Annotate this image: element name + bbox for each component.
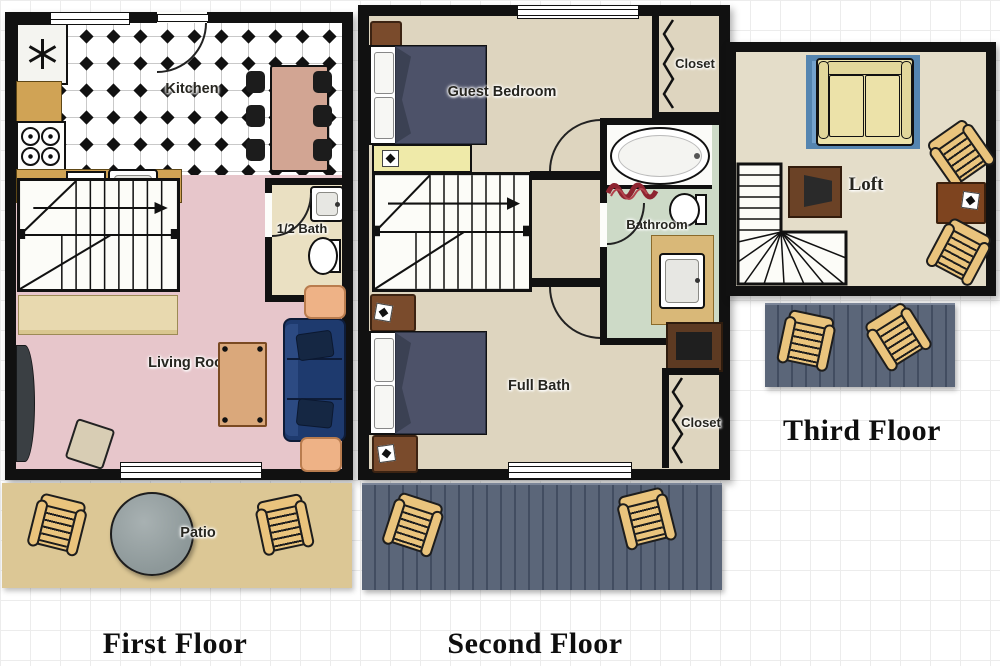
dresser — [372, 144, 472, 173]
first-floor-title: First Floor — [35, 627, 315, 661]
bed-blanket — [395, 332, 486, 434]
deck-sliding-door — [508, 462, 632, 479]
dining-chair — [246, 105, 265, 127]
bathroom-door-swing — [607, 203, 645, 245]
bathroom-vanity — [651, 235, 714, 325]
bathroom-door-opening — [600, 203, 607, 247]
nightstand — [370, 294, 416, 332]
dining-chair — [313, 139, 332, 161]
bed-pillow — [374, 385, 394, 429]
patio-chair — [253, 492, 315, 556]
faucet-icon — [695, 278, 700, 283]
dining-chair — [313, 71, 332, 93]
first-floor-plan: Kitchen — [5, 12, 353, 480]
lamp-icon — [382, 150, 399, 167]
second-floor-plan: Guest Bedroom — [358, 5, 730, 480]
kitchen-window — [50, 12, 130, 25]
blanket-fold — [396, 47, 411, 143]
lamp-icon — [374, 303, 394, 323]
loft-chair — [924, 215, 995, 287]
half-bath-room: 1/2 Bath — [265, 178, 342, 302]
refrigerator — [16, 23, 68, 85]
balcony-sliding-window — [517, 5, 639, 19]
half-bath-sink — [310, 186, 344, 222]
bed-pillow — [374, 52, 394, 94]
third-floor-plan: Loft — [726, 42, 996, 296]
third-floor-title: Third Floor — [728, 414, 996, 448]
burner-icon — [41, 147, 60, 166]
tv-screen — [676, 332, 712, 360]
dining-chair — [313, 105, 332, 127]
sofa-cushion — [829, 75, 864, 137]
master-bed — [369, 331, 487, 435]
first-floor-stairs — [17, 178, 180, 292]
sofa-back — [827, 61, 903, 75]
tv-stand — [666, 322, 723, 372]
tv — [16, 345, 35, 462]
vanity-sink — [659, 253, 705, 309]
hall-door-swing — [549, 119, 601, 171]
patio-label: Patio — [180, 525, 215, 541]
sofa-pillow — [296, 398, 335, 429]
ottoman — [304, 285, 346, 319]
closet-top-label: Closet — [675, 56, 715, 71]
deck-chair — [776, 308, 838, 372]
dining-chair — [246, 139, 265, 161]
toilet-bowl — [308, 237, 338, 275]
loft-side-table — [936, 182, 986, 224]
bed-pillow — [374, 97, 394, 139]
patio-sliding-door — [120, 462, 262, 479]
loft-sofa — [816, 58, 914, 146]
loft-chair — [923, 116, 997, 190]
deck-chair — [614, 486, 678, 551]
sofa-cushion — [865, 75, 900, 137]
stove — [16, 121, 66, 173]
faucet-icon — [335, 202, 340, 207]
dining-chair — [246, 71, 265, 93]
full-bath-label: Full Bath — [508, 378, 570, 394]
deck-chair — [381, 490, 447, 557]
hall-door-swing — [549, 287, 601, 339]
deck-chair — [861, 299, 934, 372]
closet-top: Closet — [652, 16, 719, 119]
bathroom-room: Bathroom — [600, 118, 719, 345]
second-floor-title: Second Floor — [395, 627, 675, 661]
loft-label: Loft — [849, 174, 884, 196]
storage-bench — [18, 295, 178, 335]
blanket-fold — [396, 333, 411, 433]
patio-chair — [26, 492, 90, 557]
closet-bottom-label: Closet — [681, 415, 721, 430]
guest-bedroom-label: Guest Bedroom — [448, 84, 557, 100]
patio-area: Patio — [2, 483, 352, 588]
cushion-icon — [961, 191, 980, 210]
third-floor-deck — [765, 303, 955, 387]
second-floor-deck — [362, 483, 722, 590]
burner-icon — [21, 127, 40, 146]
nightstand — [372, 435, 418, 473]
closet-bottom: Closet — [662, 368, 719, 468]
wall-stub — [530, 278, 604, 287]
kitchen-label: Kitchen — [165, 81, 218, 97]
kitchen-counter-left — [16, 81, 62, 123]
entry-door-leaf — [157, 14, 209, 22]
bath-rug-icon — [605, 177, 663, 201]
lamp-icon — [377, 444, 396, 463]
loft-tv — [788, 166, 842, 218]
sofa-arm — [818, 61, 829, 139]
half-bath-door-opening — [265, 193, 272, 237]
stool — [64, 418, 115, 470]
second-floor-stairs — [372, 172, 532, 292]
sink-basin — [665, 259, 699, 303]
ottoman — [300, 437, 342, 472]
burner-icon — [41, 127, 60, 146]
burner-icon — [21, 147, 40, 166]
tv-screen — [804, 175, 832, 207]
bed-pillow — [374, 338, 394, 382]
sofa-arm — [901, 61, 912, 139]
sofa-pillow — [295, 330, 334, 362]
sofa — [283, 318, 346, 442]
half-bath-toilet — [308, 235, 341, 273]
wall-stub — [530, 171, 604, 180]
floor-plan-canvas: Kitchen — [0, 0, 1000, 666]
coffee-table — [218, 342, 267, 427]
